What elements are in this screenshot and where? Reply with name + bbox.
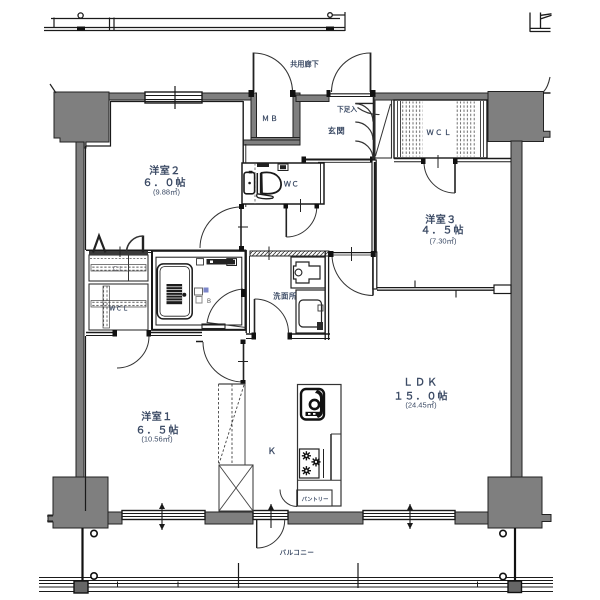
svg-text:ＬＤＫ: ＬＤＫ bbox=[403, 377, 439, 389]
svg-text:パントリー: パントリー bbox=[302, 495, 329, 503]
svg-text:(7.30㎡): (7.30㎡) bbox=[429, 237, 457, 246]
svg-text:洋室３: 洋室３ bbox=[425, 213, 457, 226]
svg-text:玄関: 玄関 bbox=[328, 126, 345, 136]
svg-text:バルコニー: バルコニー bbox=[280, 549, 315, 557]
svg-text:ＭＢ: ＭＢ bbox=[262, 114, 279, 123]
svg-text:(9.88㎡): (9.88㎡) bbox=[153, 188, 181, 197]
svg-text:ＣＬ: ＣＬ bbox=[112, 266, 124, 273]
svg-text:４．５帖: ４．５帖 bbox=[421, 224, 465, 237]
svg-text:共用廊下: 共用廊下 bbox=[290, 60, 319, 69]
svg-text:B: B bbox=[207, 299, 211, 305]
svg-text:洋室１: 洋室１ bbox=[141, 410, 173, 423]
svg-text:(10.56㎡): (10.56㎡) bbox=[141, 435, 173, 444]
svg-text:洗面所: 洗面所 bbox=[273, 292, 297, 301]
svg-text:ＷＣＬ: ＷＣＬ bbox=[109, 305, 129, 313]
svg-text:ＷＣ: ＷＣ bbox=[284, 180, 299, 189]
svg-text:ＷＣＬ: ＷＣＬ bbox=[426, 128, 452, 137]
svg-text:下足入: 下足入 bbox=[337, 106, 357, 114]
svg-text:(24.45㎡): (24.45㎡) bbox=[405, 401, 437, 410]
svg-text:洋室２: 洋室２ bbox=[149, 164, 181, 177]
svg-text:Ｋ: Ｋ bbox=[267, 446, 276, 456]
